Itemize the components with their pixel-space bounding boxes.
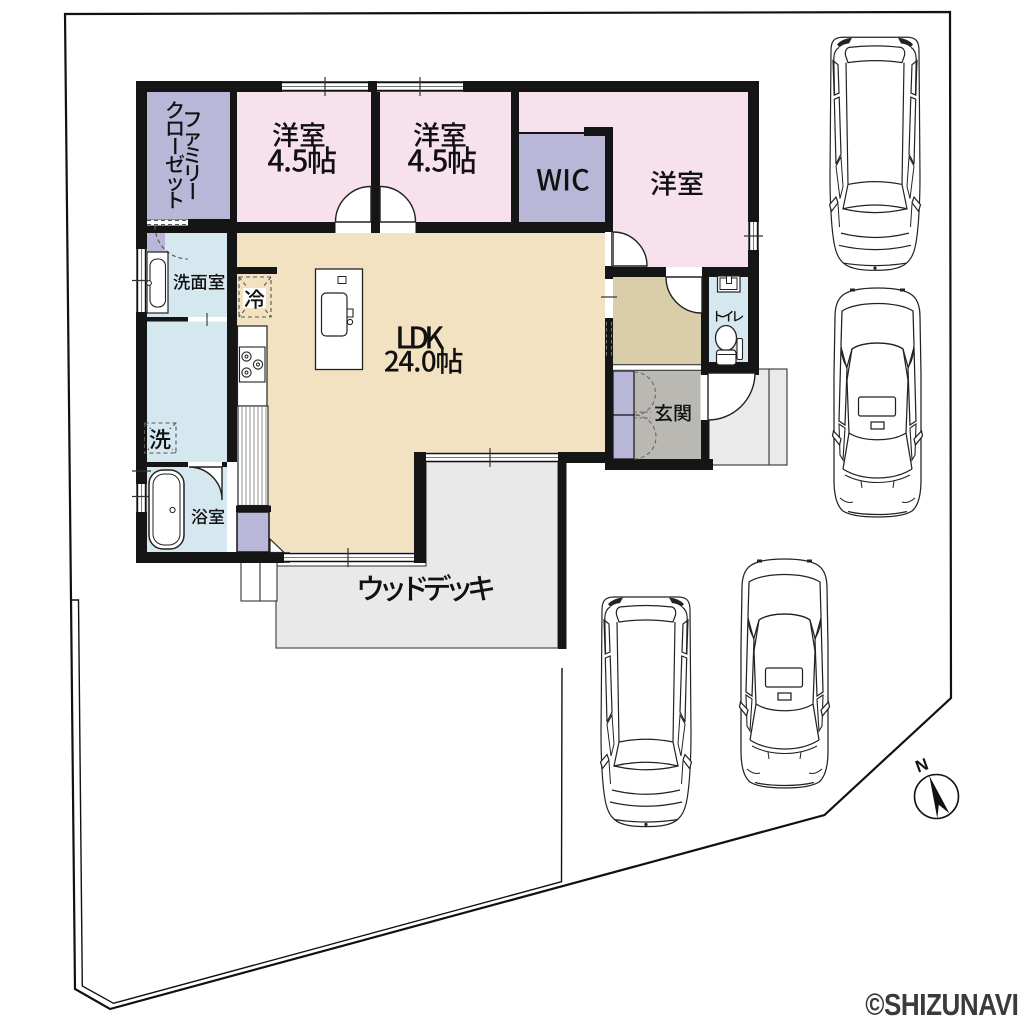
svg-text:©SHIZUNAVI: ©SHIZUNAVI	[865, 988, 1018, 1023]
